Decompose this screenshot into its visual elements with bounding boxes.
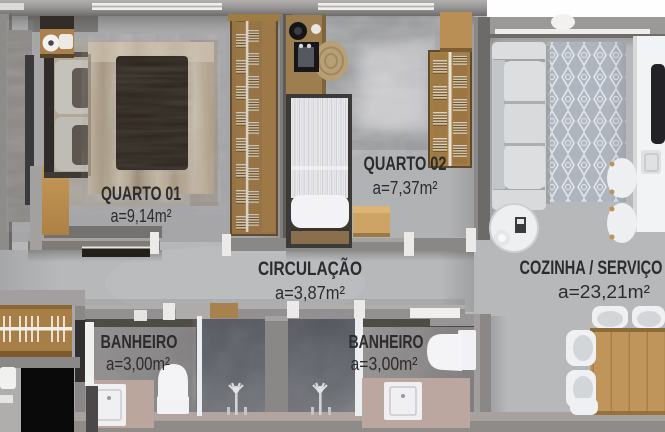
svg-text:a=3,87m²: a=3,87m² — [275, 282, 345, 303]
svg-text:a=3,00m²: a=3,00m² — [351, 353, 418, 374]
svg-text:COZINHA / SERVIÇO: COZINHA / SERVIÇO — [520, 258, 663, 279]
svg-text:QUARTO 02: QUARTO 02 — [364, 154, 447, 175]
svg-text:a=3,00m²: a=3,00m² — [106, 353, 170, 374]
svg-text:QUARTO 01: QUARTO 01 — [101, 184, 181, 205]
svg-text:a=23,21m²: a=23,21m² — [558, 281, 650, 302]
svg-text:a=9,14m²: a=9,14m² — [111, 205, 172, 226]
svg-text:BANHEIRO: BANHEIRO — [101, 331, 178, 352]
svg-text:a=7,37m²: a=7,37m² — [373, 177, 438, 198]
svg-text:BANHEIRO: BANHEIRO — [349, 331, 424, 352]
svg-text:CIRCULAÇÃO: CIRCULAÇÃO — [258, 258, 362, 280]
